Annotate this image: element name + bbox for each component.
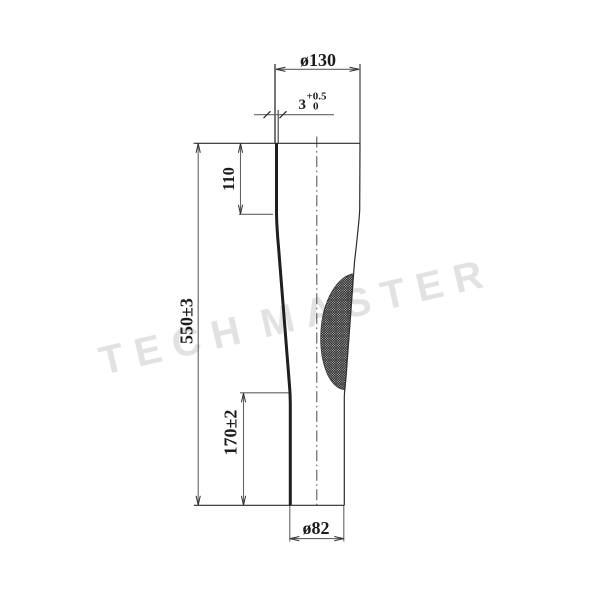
svg-text:ø130: ø130 xyxy=(300,50,336,70)
svg-text:110: 110 xyxy=(219,167,238,191)
svg-text:0: 0 xyxy=(313,101,319,113)
svg-text:TECH MASTER: TECH MASTER xyxy=(95,250,498,384)
svg-text:550±3: 550±3 xyxy=(177,298,197,344)
svg-text:3: 3 xyxy=(299,97,307,113)
svg-text:ø82: ø82 xyxy=(303,518,330,538)
svg-text:170±2: 170±2 xyxy=(221,410,241,456)
